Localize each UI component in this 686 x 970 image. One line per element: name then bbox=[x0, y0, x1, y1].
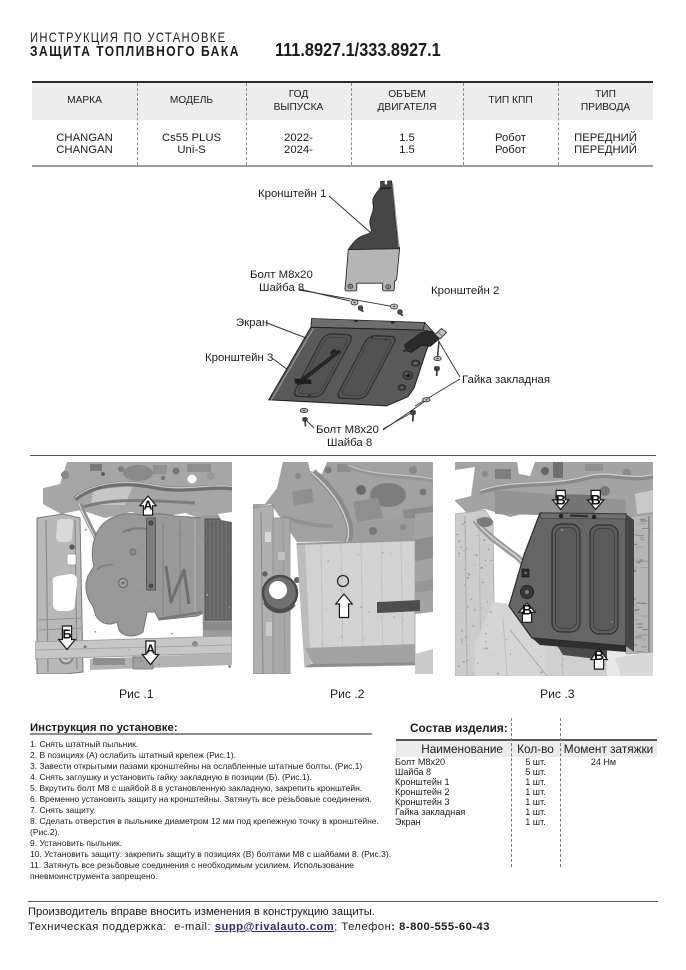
svg-text:В: В bbox=[556, 492, 566, 508]
svg-text:Гайка закладная: Гайка закладная bbox=[462, 374, 550, 386]
svg-text:Болт М8х20: Болт М8х20 bbox=[250, 269, 313, 281]
svg-text:Шайба 8: Шайба 8 bbox=[327, 437, 372, 449]
svg-text:Б: Б bbox=[63, 628, 72, 642]
svg-text:В: В bbox=[522, 602, 532, 618]
svg-text:А: А bbox=[146, 643, 155, 657]
svg-text:Кронштейн 1: Кронштейн 1 bbox=[258, 188, 326, 200]
svg-text:Шайба 8: Шайба 8 bbox=[259, 282, 304, 294]
svg-text:Кронштейн 2: Кронштейн 2 bbox=[431, 285, 499, 297]
svg-text:В: В bbox=[591, 492, 601, 508]
svg-text:Экран: Экран bbox=[236, 317, 268, 329]
svg-text:Болт М8х20: Болт М8х20 bbox=[316, 424, 379, 436]
svg-text:В: В bbox=[594, 647, 604, 663]
svg-text:Кронштейн 3: Кронштейн 3 bbox=[205, 352, 273, 364]
svg-text:А: А bbox=[143, 499, 152, 513]
